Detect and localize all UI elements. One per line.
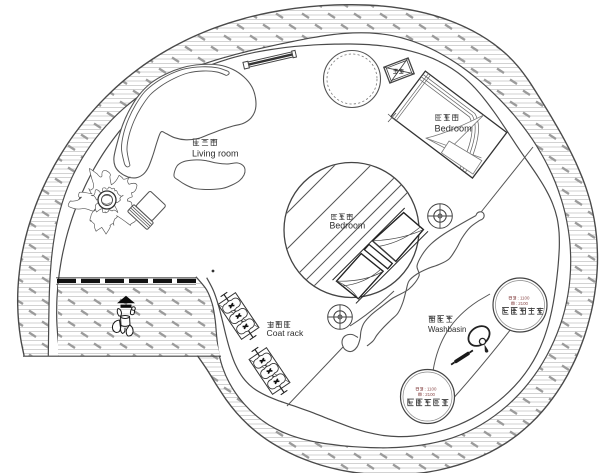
svg-text:: 2100: : 2100 (423, 392, 436, 397)
svg-text:Living room: Living room (192, 149, 239, 159)
svg-text:: 2100: : 2100 (516, 301, 529, 306)
svg-text:Bedroom: Bedroom (330, 221, 366, 231)
svg-text:Coat rack: Coat rack (267, 328, 304, 338)
svg-text:: 1100: : 1100 (425, 387, 437, 392)
svg-text:Washbasin: Washbasin (428, 325, 466, 334)
svg-text:Bedroom: Bedroom (435, 123, 473, 133)
svg-text:: 1100: : 1100 (518, 296, 530, 301)
